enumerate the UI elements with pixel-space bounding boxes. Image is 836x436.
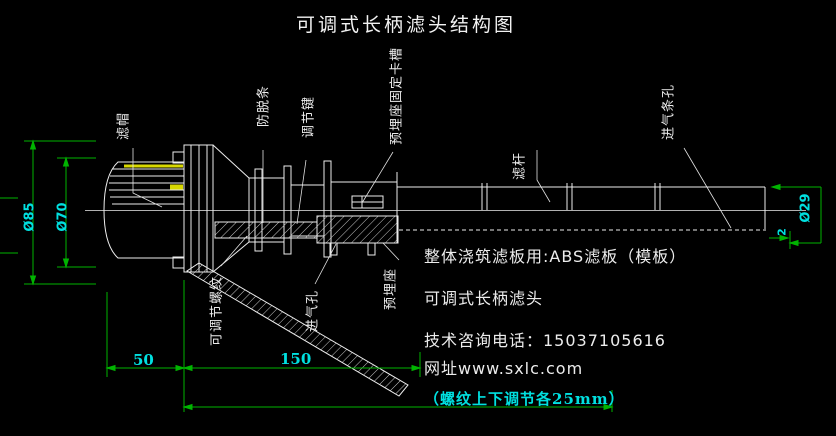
dim-thread-note: （螺纹上下调节各25mm） — [424, 388, 625, 409]
label-filter-cap: 滤帽 — [113, 112, 132, 140]
label-embed-seat: 预埋座 — [380, 268, 399, 310]
cad-drawing-canvas: 可调式长柄滤头结构图 滤帽 防脱条 调节键 预埋座固定卡槽 滤杆 进气条孔 可调… — [0, 0, 836, 436]
note-product-name: 可调式长柄滤头 — [424, 285, 543, 309]
dim-cap-outer-dia: Ø85 — [23, 202, 38, 231]
label-filter-rod: 滤杆 — [509, 152, 528, 180]
note-phone: 技术咨询电话：15037105616 — [424, 327, 666, 351]
drawing-title: 可调式长柄滤头结构图 — [296, 10, 516, 37]
dim-seg-150: 150 — [280, 350, 311, 368]
label-adjust-key: 调节键 — [298, 96, 317, 138]
label-anti-off-strip: 防脱条 — [253, 85, 272, 127]
label-air-inlet-slots: 进气条孔 — [658, 84, 677, 140]
note-website: 网址www.sxlc.com — [424, 355, 583, 379]
note-abs-board: 整体浇筑滤板用:ABS滤板（模板） — [424, 243, 686, 267]
label-adjustable-thread: 可调节螺纹 — [206, 276, 225, 346]
dim-cap-inner-dia: Ø70 — [56, 202, 71, 231]
dim-seg-50: 50 — [133, 351, 154, 369]
dim-rod-dia: Ø29 — [799, 193, 814, 222]
dimension-lines — [0, 141, 821, 412]
dim-wall-thickness: 2 — [776, 228, 789, 236]
label-air-inlet-hole: 进气孔 — [302, 290, 321, 332]
drawing-linework — [0, 0, 836, 436]
label-embed-seat-slot: 预埋座固定卡槽 — [386, 47, 405, 145]
